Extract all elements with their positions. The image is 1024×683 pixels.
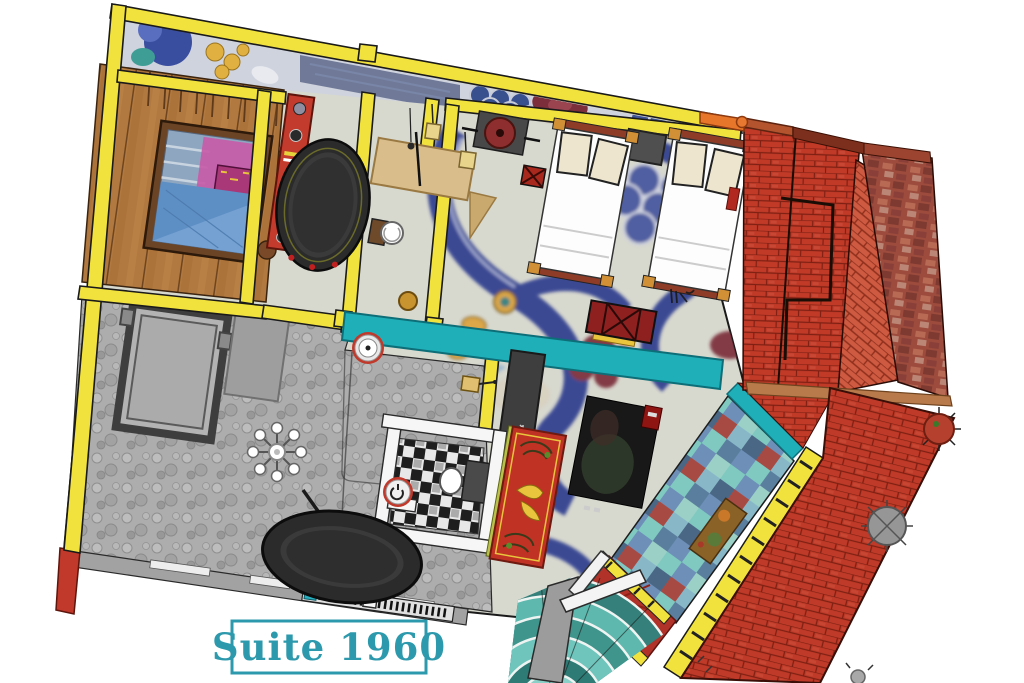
orange-post-dot xyxy=(737,117,748,128)
suite-label: Suite 1960 xyxy=(212,621,446,673)
floor-plan-canvas: Suite 1960 xyxy=(0,0,1024,683)
wall-stub-mural xyxy=(358,44,377,62)
floor-mat xyxy=(224,309,289,402)
red-brick-roof-upper xyxy=(743,118,952,406)
skylight-frame xyxy=(106,303,234,441)
sputnik-chandelier xyxy=(248,423,307,482)
red-wall-strip xyxy=(56,548,80,614)
toilet-1 xyxy=(368,219,403,245)
suite-label-text: Suite 1960 xyxy=(212,625,446,669)
gold-floor-medallion xyxy=(399,292,417,310)
red-x-stool xyxy=(521,165,546,188)
sink-1-drain xyxy=(366,346,371,351)
tree-canopy-2 xyxy=(861,500,913,552)
sink-2-basin xyxy=(386,480,410,504)
